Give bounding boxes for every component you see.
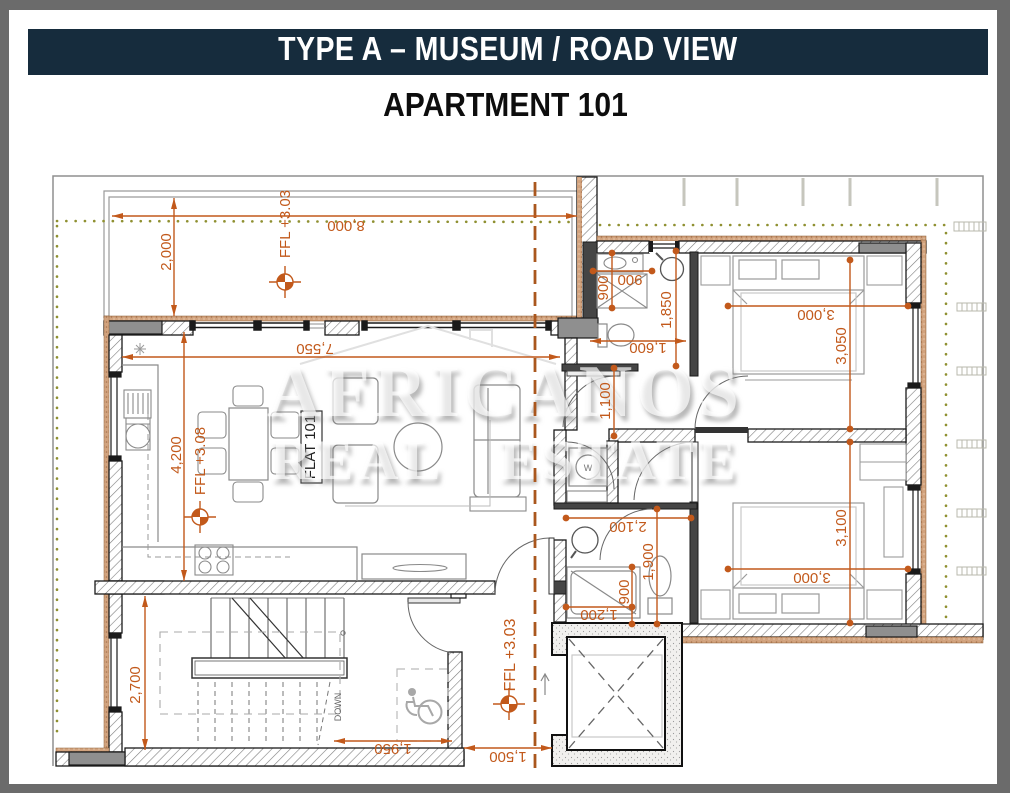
svg-text:2,700: 2,700 <box>127 666 144 704</box>
svg-text:3,100: 3,100 <box>833 509 850 547</box>
svg-text:4,200: 4,200 <box>168 436 185 474</box>
svg-text:1,850: 1,850 <box>658 291 675 329</box>
svg-text:FFL +3.03: FFL +3.03 <box>277 190 294 258</box>
svg-text:1,200: 1,200 <box>580 606 618 623</box>
svg-text:2,100: 2,100 <box>609 518 647 535</box>
svg-text:2,000: 2,000 <box>158 233 175 271</box>
svg-text:3,000: 3,000 <box>793 569 831 586</box>
svg-text:1,500: 1,500 <box>489 748 527 765</box>
svg-text:FFL +3.08: FFL +3.08 <box>192 427 209 495</box>
svg-text:1,950: 1,950 <box>374 740 412 757</box>
svg-text:1,100: 1,100 <box>597 382 614 420</box>
svg-text:900: 900 <box>617 271 642 288</box>
svg-text:1,600: 1,600 <box>629 339 667 356</box>
svg-text:900: 900 <box>595 275 612 300</box>
svg-text:7,550: 7,550 <box>296 340 334 357</box>
svg-text:1,900: 1,900 <box>640 543 657 581</box>
svg-text:3,050: 3,050 <box>833 327 850 365</box>
svg-text:FFL +3.03: FFL +3.03 <box>502 619 519 692</box>
svg-text:3,000: 3,000 <box>797 306 835 323</box>
svg-text:8,000: 8,000 <box>327 217 365 234</box>
svg-text:900: 900 <box>616 579 633 604</box>
